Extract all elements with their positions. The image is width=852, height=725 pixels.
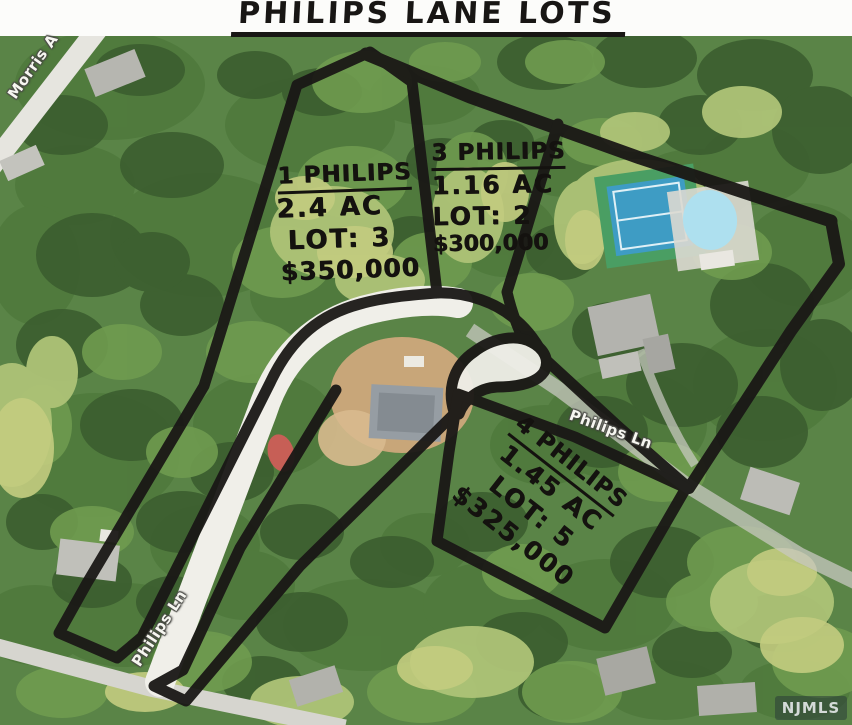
lot1-acreage: 2.4 AC (276, 190, 418, 227)
lot3-price: $300,000 (433, 230, 568, 259)
aerial-photo-canvas (0, 0, 852, 725)
lot1-price: $350,000 (280, 253, 420, 288)
lot3-number: LOT: 2 (432, 199, 567, 232)
lot1-name: 1 PHILIPS (277, 158, 417, 195)
page-title: PHILIPS LANE LOTS (231, 0, 627, 37)
aerial-lot-map: PHILIPS LANE LOTS 1 PHILIPS 2.4 AC LOT: … (0, 0, 852, 725)
njmls-watermark: NJMLS (775, 696, 847, 720)
lot1-annotation: 1 PHILIPS 2.4 AC LOT: 3 $350,000 (277, 158, 421, 289)
lot3-acreage: 1.16 AC (432, 169, 567, 202)
lot3-annotation: 3 PHILIPS 1.16 AC LOT: 2 $300,000 (431, 137, 567, 259)
lot1-number: LOT: 3 (287, 221, 419, 257)
lot3-name: 3 PHILIPS (431, 137, 566, 171)
